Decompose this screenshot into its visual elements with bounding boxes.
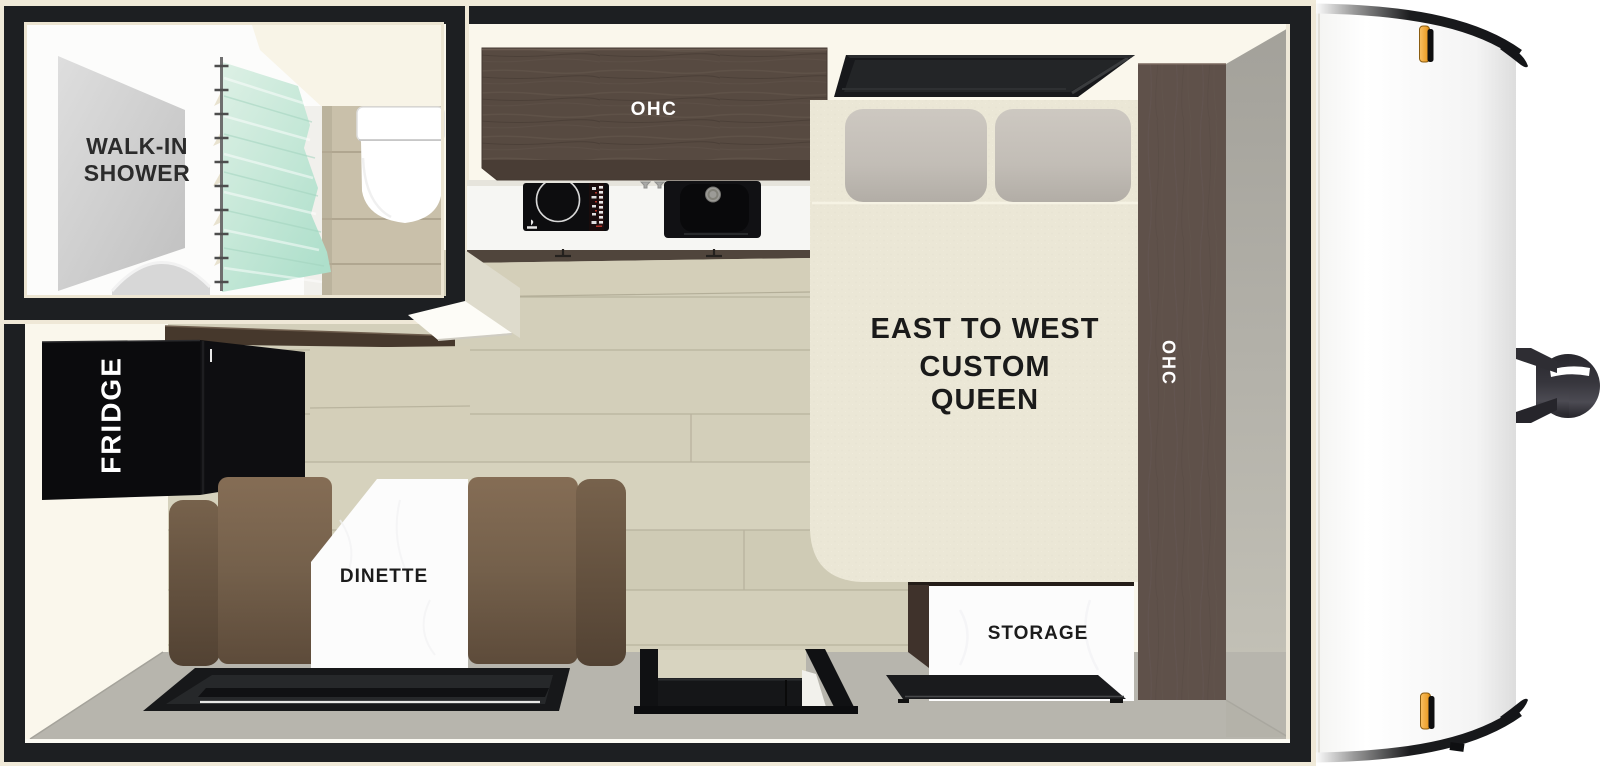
svg-text:WALK-IN: WALK-IN xyxy=(86,133,188,159)
svg-text:SHOWER: SHOWER xyxy=(84,160,191,186)
svg-text:OHC: OHC xyxy=(631,99,678,120)
svg-text:CUSTOM: CUSTOM xyxy=(919,351,1050,383)
svg-text:QUEEN: QUEEN xyxy=(931,384,1039,416)
svg-text:EAST TO WEST: EAST TO WEST xyxy=(871,313,1100,345)
svg-text:OHC: OHC xyxy=(1158,340,1178,386)
svg-text:DINETTE: DINETTE xyxy=(340,566,428,587)
svg-text:STORAGE: STORAGE xyxy=(988,623,1089,644)
svg-text:FRIDGE: FRIDGE xyxy=(95,356,126,474)
